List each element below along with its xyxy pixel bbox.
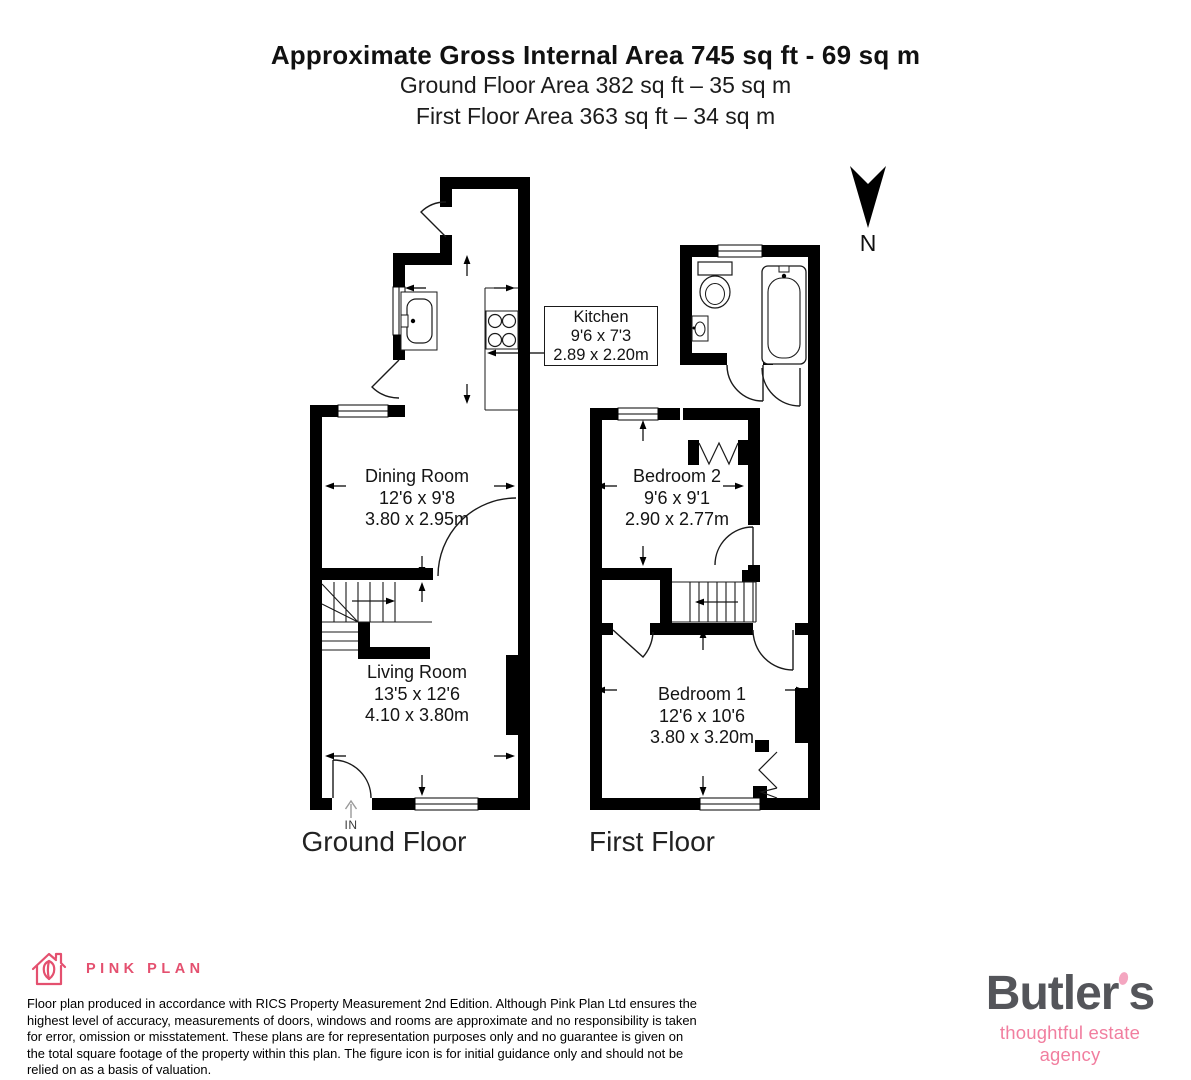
bathroom-basin (692, 316, 708, 341)
room-name: Living Room (365, 662, 469, 684)
stairs-up-arrowhead (386, 598, 395, 605)
north-label: N (860, 230, 877, 257)
first-floor-title: First Floor (589, 826, 715, 858)
room-dims-imperial: 12'6 x 9'8 (365, 488, 469, 510)
ground-floor-windows (338, 287, 478, 810)
bedroom-1-door-right-arc (753, 630, 793, 670)
ground-floor-title: Ground Floor (302, 826, 467, 858)
north-arrow-icon (850, 166, 886, 228)
room-dims-imperial: 13'5 x 12'6 (365, 684, 469, 706)
front-door-arc (333, 760, 371, 798)
ground-floor-stairs (322, 582, 432, 650)
room-dims-imperial: 12'6 x 10'6 (650, 706, 754, 728)
bedroom-1-label: Bedroom 1 12'6 x 10'6 3.80 x 3.20m (650, 684, 754, 749)
rear-door-arc (421, 202, 446, 237)
room-dims-metric: 3.80 x 3.20m (650, 727, 754, 749)
bedroom-2-label: Bedroom 2 9'6 x 9'1 2.90 x 2.77m (625, 466, 729, 531)
butlers-wordmark: Butlers (972, 970, 1168, 1018)
floorplan-page: Approximate Gross Internal Area 745 sq f… (0, 0, 1191, 1080)
floor-plan-drawing (0, 0, 1191, 1080)
living-room-label: Living Room 13'5 x 12'6 4.10 x 3.80m (365, 662, 469, 727)
bathtub (762, 266, 806, 364)
pink-plan-logo-icon (26, 946, 72, 992)
bedroom-2-door-arc (715, 527, 753, 565)
bedroom-2-closet-bifold-doors (699, 443, 738, 464)
pink-plan-name: PINK PLAN (86, 961, 205, 977)
butlers-wordmark-pre: Butler (986, 967, 1119, 1020)
butlers-tagline: thoughtful estate agency (972, 1022, 1168, 1066)
room-dims-imperial: 9'6 x 9'1 (625, 488, 729, 510)
disclaimer-text: Floor plan produced in accordance with R… (27, 996, 703, 1079)
butlers-apostrophe (1118, 972, 1128, 1009)
kitchen-stove (486, 311, 518, 349)
room-dims-metric: 2.90 x 2.77m (625, 509, 729, 531)
butlers-branding: Butlers thoughtful estate agency (972, 970, 1168, 1066)
room-dims-imperial: 9'6 x 7'3 (571, 327, 631, 346)
kitchen-label-box: Kitchen 9'6 x 7'3 2.89 x 2.20m (544, 306, 658, 366)
entrance-in-arrow-icon (346, 801, 357, 818)
bathroom-door-arc (727, 365, 763, 401)
first-floor-stairs (672, 582, 756, 622)
room-dims-metric: 3.80 x 2.95m (365, 509, 469, 531)
landing-door-arc (762, 368, 800, 406)
bedroom-1-door-left-arc (613, 630, 653, 657)
dining-room-label: Dining Room 12'6 x 9'8 3.80 x 2.95m (365, 466, 469, 531)
pink-plan-branding: PINK PLAN (26, 946, 205, 992)
room-dims-metric: 2.89 x 2.20m (553, 346, 648, 365)
toilet (698, 262, 732, 308)
room-name: Bedroom 2 (625, 466, 729, 488)
kitchen-dining-door-arc (372, 360, 399, 398)
room-name: Kitchen (573, 308, 628, 327)
apostrophe-dot-icon (1118, 971, 1130, 986)
kitchen-sink (401, 292, 437, 350)
room-name: Bedroom 1 (650, 684, 754, 706)
butlers-wordmark-post: s (1128, 967, 1154, 1020)
room-dims-metric: 4.10 x 3.80m (365, 705, 469, 727)
room-name: Dining Room (365, 466, 469, 488)
